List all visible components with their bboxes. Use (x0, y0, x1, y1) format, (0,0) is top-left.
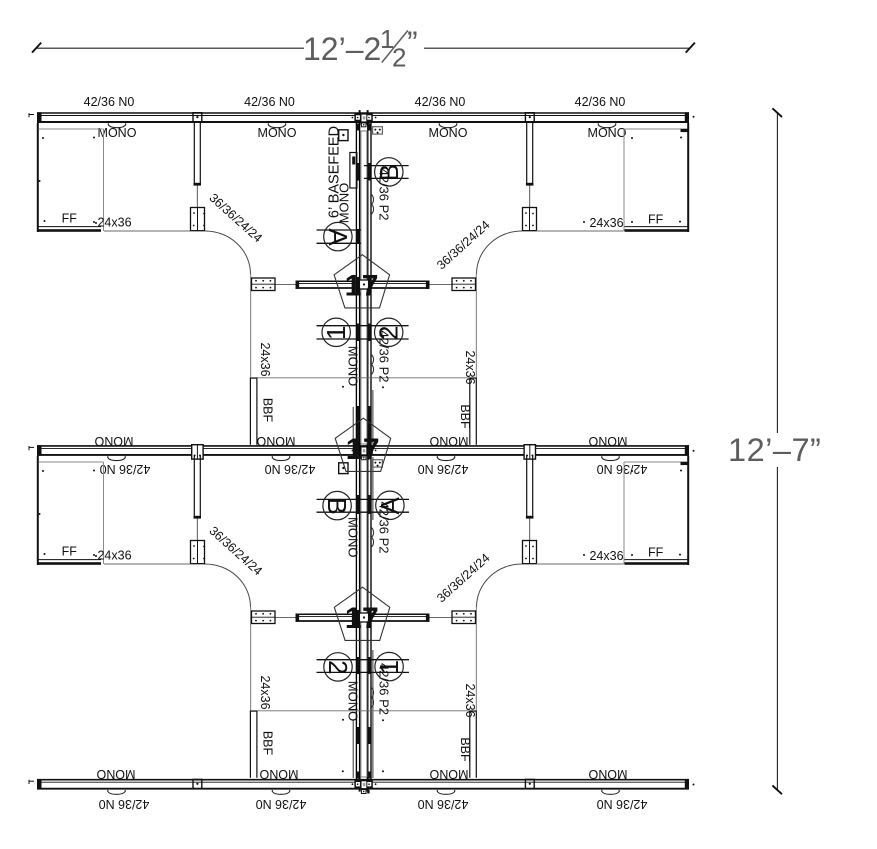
svg-text:1: 1 (321, 326, 351, 340)
svg-text:MONO: MONO (429, 434, 468, 448)
svg-text:42/36 N0: 42/36 N0 (99, 797, 150, 811)
svg-text:BBF: BBF (261, 731, 275, 756)
svg-text:42/36 N0: 42/36 N0 (256, 797, 307, 811)
svg-text:MONO: MONO (96, 767, 135, 781)
svg-text:2: 2 (323, 660, 353, 674)
svg-text:A: A (323, 228, 353, 246)
svg-text:42/36 N0: 42/36 N0 (597, 462, 648, 476)
svg-text:42/36 N0: 42/36 N0 (415, 95, 466, 109)
svg-text:FF: FF (62, 212, 78, 226)
svg-text:BBF: BBF (458, 737, 472, 762)
svg-text:12’–2: 12’–2 (303, 31, 381, 67)
svg-text:42/36 N0: 42/36 N0 (100, 462, 151, 476)
svg-text:B: B (322, 497, 352, 514)
svg-text:17: 17 (345, 270, 379, 303)
svg-text:42/36 N0: 42/36 N0 (84, 95, 135, 109)
svg-text:FF: FF (648, 212, 664, 226)
svg-text:FF: FF (62, 545, 78, 559)
svg-text:24x36: 24x36 (97, 549, 131, 563)
svg-text:MONO: MONO (346, 681, 361, 721)
svg-text:MONO: MONO (346, 346, 361, 386)
svg-text:MONO: MONO (429, 126, 468, 140)
svg-text:42/36 N0: 42/36 N0 (418, 797, 469, 811)
svg-text:MONO: MONO (256, 434, 295, 448)
svg-text:42/36 N0: 42/36 N0 (244, 95, 295, 109)
svg-text:42/36 N0: 42/36 N0 (418, 462, 469, 476)
svg-text:24x36: 24x36 (589, 216, 623, 230)
svg-text:24x36: 24x36 (589, 549, 623, 563)
svg-text:42/36 P2: 42/36 P2 (376, 168, 391, 220)
svg-text:24x36: 24x36 (463, 350, 477, 384)
svg-text:MONO: MONO (588, 434, 627, 448)
svg-text:42/36 P2: 42/36 P2 (376, 501, 391, 553)
svg-text:17: 17 (345, 602, 379, 635)
svg-text:42/36 N0: 42/36 N0 (265, 462, 316, 476)
svg-text:42/36 N0: 42/36 N0 (575, 95, 626, 109)
svg-text:24x36: 24x36 (97, 216, 131, 230)
svg-text:24x36: 24x36 (258, 675, 272, 709)
svg-text:24x36: 24x36 (258, 342, 272, 376)
svg-text:MONO: MONO (94, 434, 133, 448)
svg-text:BBF: BBF (458, 404, 472, 429)
svg-text:42/36 N0: 42/36 N0 (597, 797, 648, 811)
svg-text:MONO: MONO (346, 517, 361, 557)
svg-text:42/36 P2: 42/36 P2 (376, 330, 391, 382)
svg-text:MONO: MONO (259, 767, 298, 781)
svg-text:12’–7”: 12’–7” (728, 432, 821, 468)
svg-text:”: ” (407, 25, 418, 61)
svg-text:24x36: 24x36 (463, 683, 477, 717)
svg-text:MONO: MONO (429, 767, 468, 781)
svg-text:FF: FF (648, 545, 664, 559)
svg-text:MONO: MONO (258, 126, 297, 140)
svg-text:MONO: MONO (337, 183, 352, 223)
svg-text:17: 17 (346, 433, 380, 466)
svg-text:BBF: BBF (261, 398, 275, 423)
svg-text:MONO: MONO (588, 126, 627, 140)
svg-text:42/36 P2: 42/36 P2 (376, 663, 391, 715)
svg-text:MONO: MONO (588, 767, 627, 781)
